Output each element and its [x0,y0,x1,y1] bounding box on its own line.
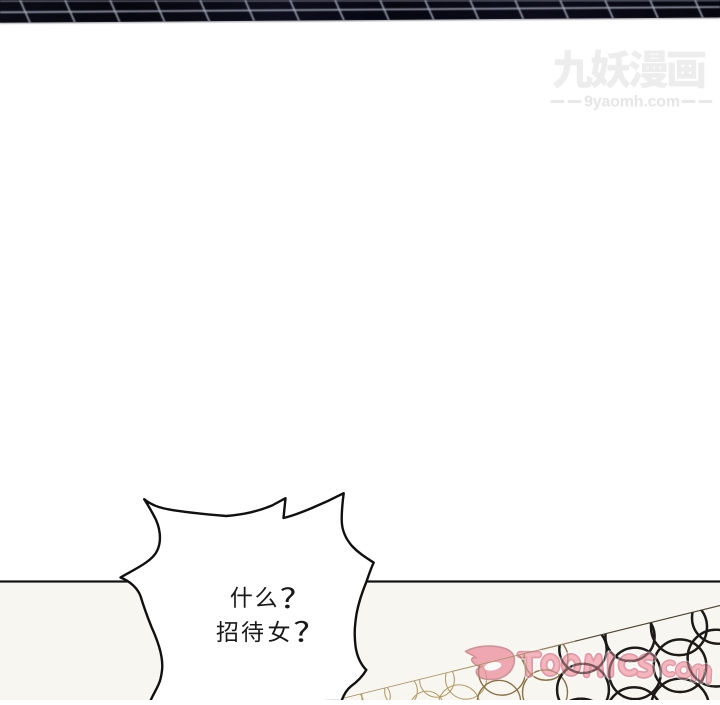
svg-text:9yaomh.com: 9yaomh.com [584,94,680,111]
